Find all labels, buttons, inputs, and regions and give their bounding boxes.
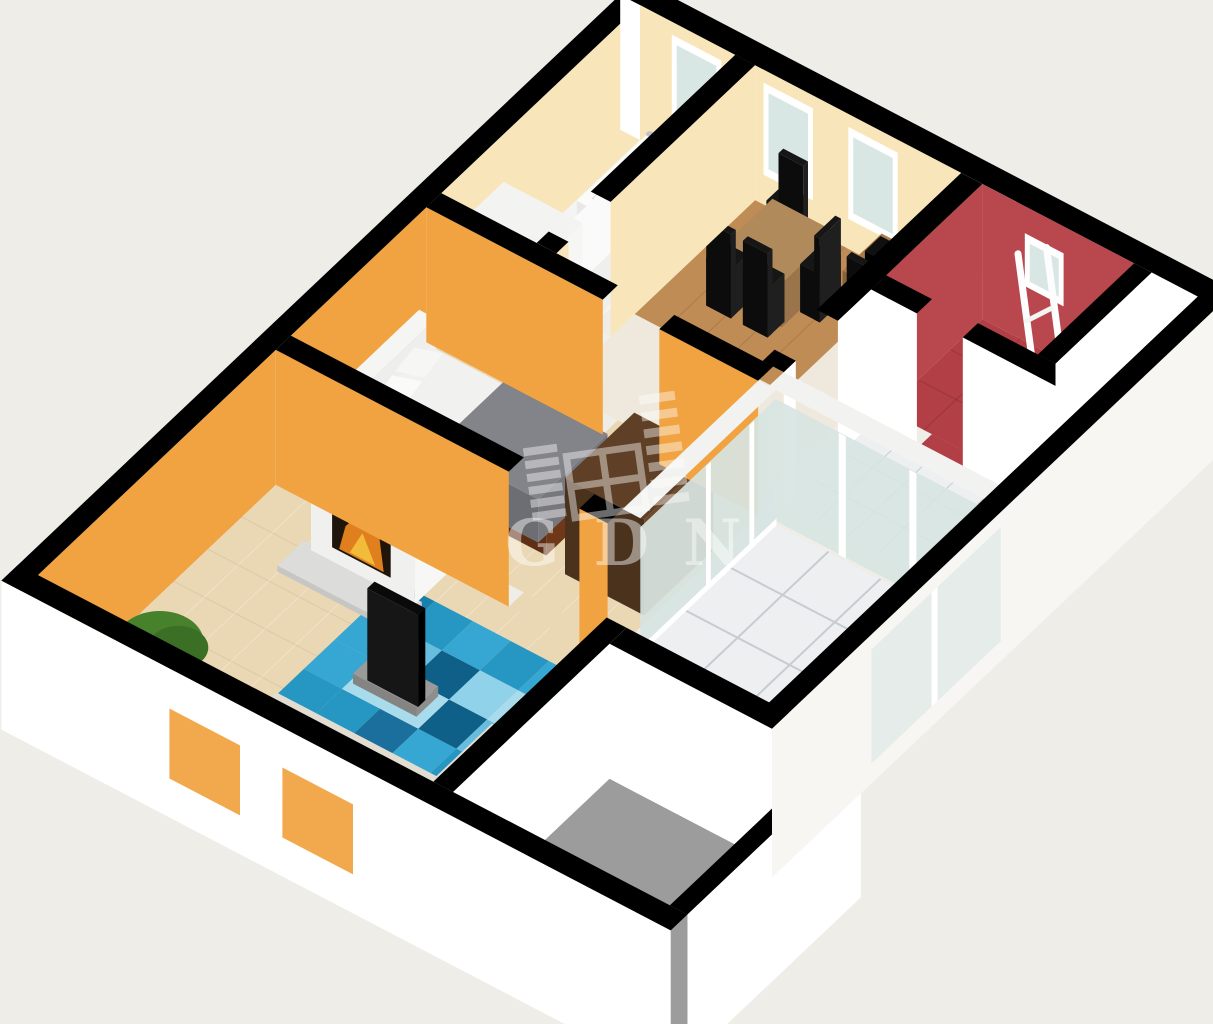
floorplan-3d-view: GDN (0, 0, 1213, 1024)
watermark-text: GDN (505, 506, 776, 581)
watermark: GDN (0, 0, 1213, 1024)
watermark-logo (518, 391, 690, 524)
